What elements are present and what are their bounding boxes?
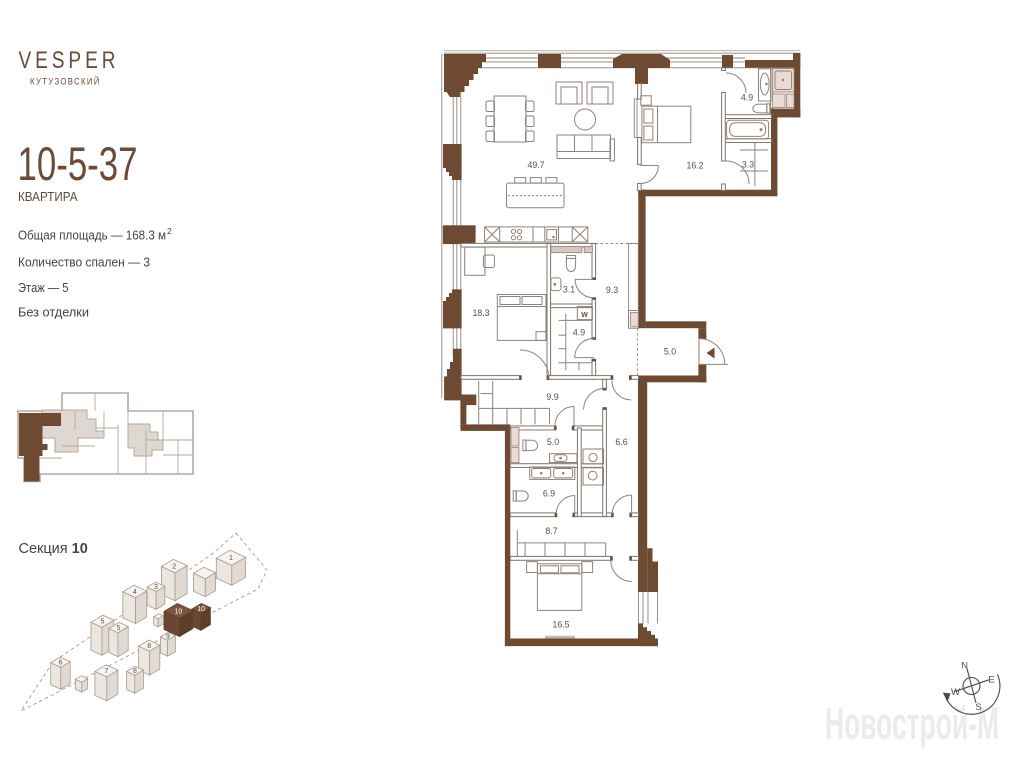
- svg-text:Новострой-М: Новострой-М: [825, 698, 999, 749]
- svg-text:10-5-37: 10-5-37: [18, 137, 138, 190]
- svg-text:Количество спален — 3: Количество спален — 3: [18, 255, 150, 270]
- svg-text:7: 7: [104, 668, 108, 675]
- svg-text:4.9: 4.9: [741, 93, 753, 103]
- svg-text:3.3: 3.3: [742, 160, 754, 170]
- svg-text:9: 9: [166, 634, 170, 641]
- svg-text:КУТУЗОВСКИЙ: КУТУЗОВСКИЙ: [30, 75, 101, 87]
- svg-text:E: E: [988, 675, 994, 686]
- svg-text:3: 3: [154, 584, 158, 591]
- svg-text:10: 10: [175, 608, 183, 615]
- svg-text:4: 4: [133, 589, 137, 596]
- svg-text:16.2: 16.2: [686, 161, 703, 171]
- svg-text:N: N: [961, 661, 968, 672]
- svg-text:49.7: 49.7: [527, 160, 544, 170]
- svg-text:5: 5: [117, 625, 121, 632]
- svg-text:1: 1: [229, 555, 233, 562]
- svg-text:8: 8: [133, 668, 137, 675]
- svg-text:S: S: [975, 702, 981, 713]
- svg-text:9.9: 9.9: [546, 392, 558, 402]
- svg-text:5.0: 5.0: [547, 437, 559, 447]
- svg-text:6.6: 6.6: [615, 437, 627, 447]
- svg-text:2: 2: [167, 226, 172, 236]
- svg-text:Этаж — 5: Этаж — 5: [18, 280, 69, 295]
- svg-text:W: W: [581, 312, 588, 319]
- svg-text:Секция 10: Секция 10: [19, 541, 88, 557]
- svg-text:18.3: 18.3: [472, 308, 489, 318]
- svg-text:КВАРТИРА: КВАРТИРА: [18, 190, 78, 204]
- svg-text:16.5: 16.5: [552, 620, 569, 630]
- svg-text:Общая площадь — 168.3 м: Общая площадь — 168.3 м: [18, 228, 166, 243]
- svg-text:5: 5: [100, 619, 104, 626]
- svg-text:W: W: [951, 687, 960, 698]
- svg-text:3.1: 3.1: [563, 285, 575, 295]
- svg-text:9.3: 9.3: [606, 285, 618, 295]
- svg-text:6.9: 6.9: [543, 489, 555, 499]
- svg-text:5.0: 5.0: [664, 347, 676, 357]
- svg-text:Без отделки: Без отделки: [18, 305, 89, 320]
- svg-text:6: 6: [59, 660, 63, 667]
- svg-text:VESPER: VESPER: [19, 46, 120, 74]
- svg-text:8: 8: [147, 643, 151, 650]
- svg-text:4.9: 4.9: [573, 328, 585, 338]
- svg-text:8.7: 8.7: [545, 526, 557, 536]
- svg-text:10: 10: [197, 606, 205, 613]
- svg-text:2: 2: [172, 564, 176, 571]
